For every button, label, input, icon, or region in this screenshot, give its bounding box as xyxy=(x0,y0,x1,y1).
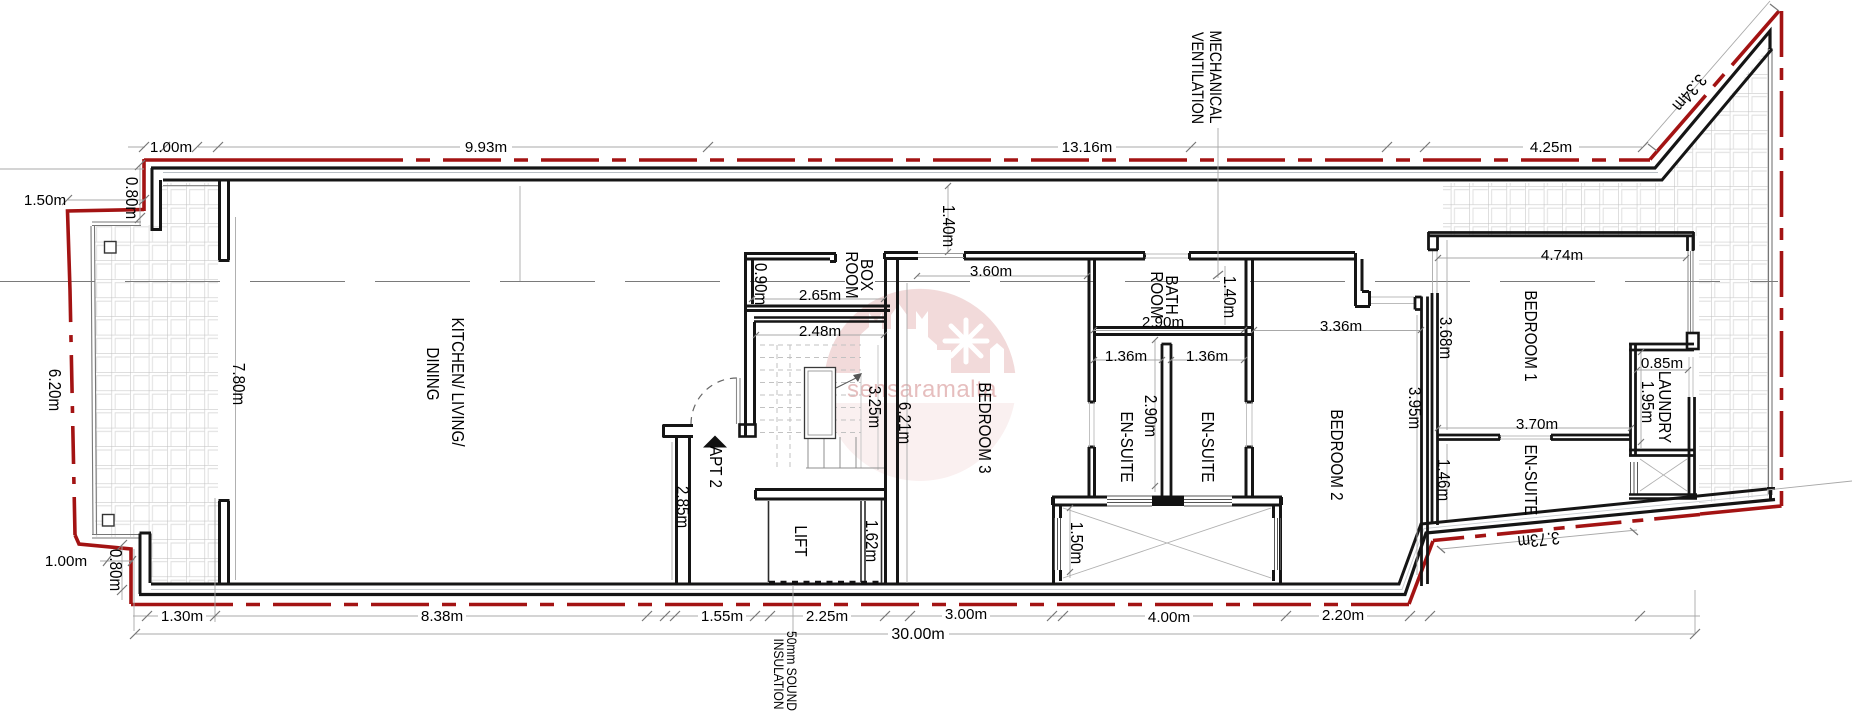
svg-text:0.80m: 0.80m xyxy=(122,177,142,219)
svg-text:1.50m: 1.50m xyxy=(1067,522,1087,564)
svg-text:1.30m: 1.30m xyxy=(161,608,203,625)
svg-text:EN-SUITE: EN-SUITE xyxy=(1521,445,1541,516)
svg-text:ROOM: ROOM xyxy=(1147,271,1167,318)
svg-text:1.55m: 1.55m xyxy=(701,608,743,625)
svg-text:1.00m: 1.00m xyxy=(45,553,87,570)
svg-text:8.38m: 8.38m xyxy=(421,608,463,625)
svg-text:ROOM: ROOM xyxy=(842,251,862,298)
svg-text:4.25m: 4.25m xyxy=(1530,139,1572,156)
svg-text:1.00m: 1.00m xyxy=(150,139,192,156)
svg-text:0.85m: 0.85m xyxy=(1641,355,1683,372)
svg-text:MECHANICAL: MECHANICAL xyxy=(1206,30,1224,123)
svg-text:1.62m: 1.62m xyxy=(862,520,882,562)
svg-text:6.20m: 6.20m xyxy=(45,369,65,411)
svg-text:DINING: DINING xyxy=(423,347,443,400)
svg-text:BEDROOM 3: BEDROOM 3 xyxy=(975,382,995,473)
svg-text:3.60m: 3.60m xyxy=(970,263,1012,280)
svg-text:2.90m: 2.90m xyxy=(1142,314,1184,331)
svg-text:3.70m: 3.70m xyxy=(1516,416,1558,433)
svg-text:13.16m: 13.16m xyxy=(1062,139,1113,156)
svg-text:0.90m: 0.90m xyxy=(751,263,771,305)
svg-text:3.73m: 3.73m xyxy=(1517,528,1561,553)
svg-text:LIFT: LIFT xyxy=(791,525,811,556)
svg-text:INSULATION: INSULATION xyxy=(771,638,787,709)
svg-text:2.90m: 2.90m xyxy=(1141,395,1161,437)
svg-text:3.25m: 3.25m xyxy=(865,386,885,428)
svg-text:1.36m: 1.36m xyxy=(1186,348,1228,365)
svg-text:1.50m: 1.50m xyxy=(24,192,66,209)
svg-text:EN-SUITE: EN-SUITE xyxy=(1117,412,1137,483)
svg-text:1.40m: 1.40m xyxy=(939,205,959,247)
svg-text:9.93m: 9.93m xyxy=(465,139,507,156)
svg-text:6.21m: 6.21m xyxy=(895,402,915,444)
svg-text:1.36m: 1.36m xyxy=(1105,348,1147,365)
svg-text:1.95m: 1.95m xyxy=(1638,381,1658,423)
svg-text:KITCHEN/ LIVING/: KITCHEN/ LIVING/ xyxy=(448,317,468,446)
svg-text:2.85m: 2.85m xyxy=(673,486,693,528)
svg-text:3.95m: 3.95m xyxy=(1405,387,1425,429)
svg-text:4.00m: 4.00m xyxy=(1148,609,1190,626)
svg-text:2.48m: 2.48m xyxy=(799,323,841,340)
svg-text:2.20m: 2.20m xyxy=(1322,607,1364,624)
svg-text:APT 2: APT 2 xyxy=(706,446,726,488)
svg-text:4.74m: 4.74m xyxy=(1541,247,1583,264)
svg-text:0.80m: 0.80m xyxy=(106,549,126,591)
svg-text:30.00m: 30.00m xyxy=(891,626,944,643)
svg-text:3.00m: 3.00m xyxy=(945,606,987,623)
svg-text:VENTILATION: VENTILATION xyxy=(1188,32,1206,124)
svg-text:2.25m: 2.25m xyxy=(806,608,848,625)
svg-text:3.36m: 3.36m xyxy=(1320,318,1362,335)
svg-text:2.65m: 2.65m xyxy=(799,287,841,304)
svg-text:7.80m: 7.80m xyxy=(229,363,249,405)
svg-text:BEDROOM 1: BEDROOM 1 xyxy=(1521,290,1541,381)
svg-text:3.68m: 3.68m xyxy=(1436,317,1456,359)
svg-text:BEDROOM 2: BEDROOM 2 xyxy=(1327,409,1347,500)
svg-text:1.46m: 1.46m xyxy=(1434,459,1454,501)
svg-text:1.40m: 1.40m xyxy=(1220,276,1240,318)
svg-text:EN-SUITE: EN-SUITE xyxy=(1198,412,1218,483)
